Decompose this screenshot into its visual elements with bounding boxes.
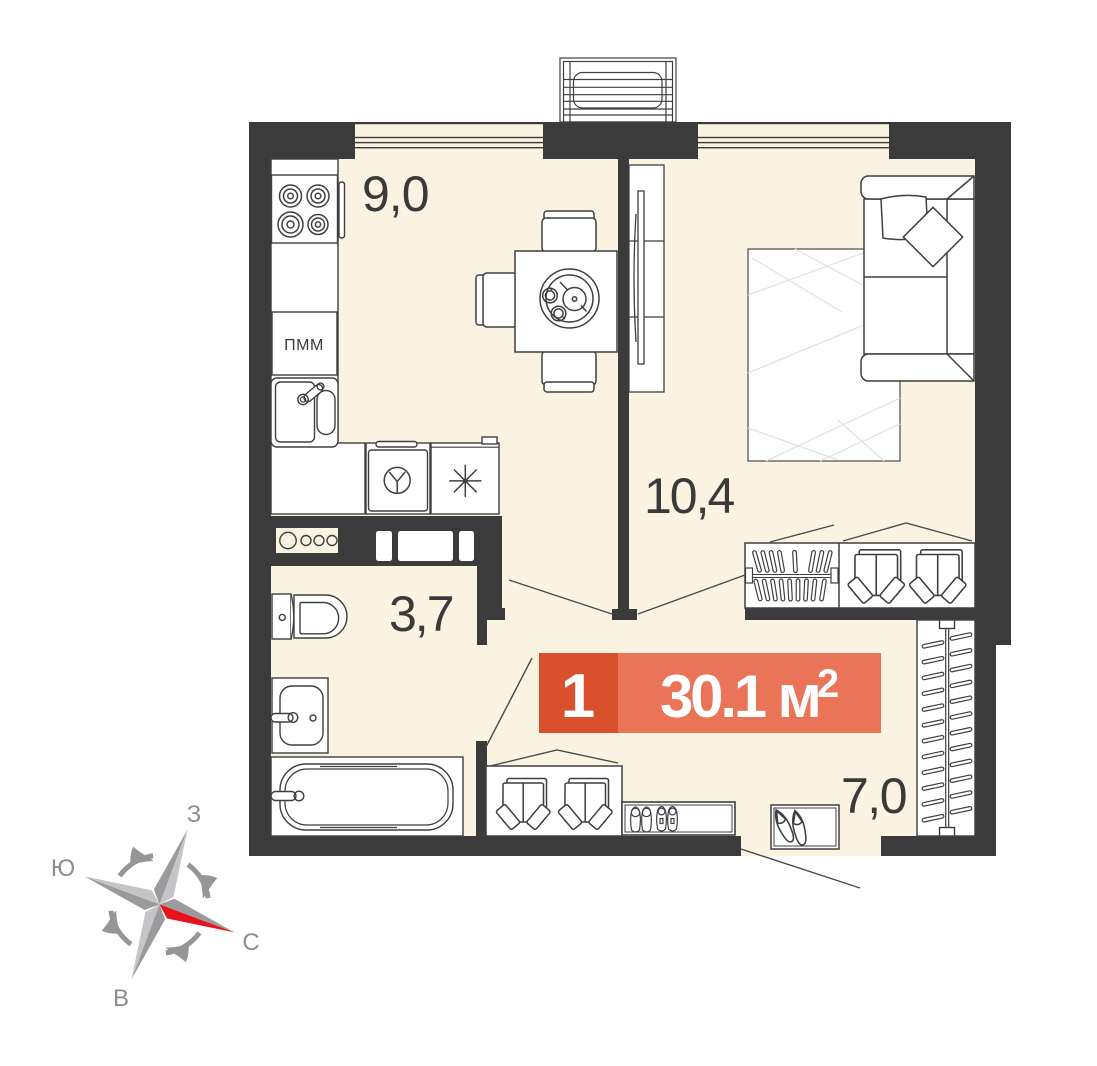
svg-text:ПММ: ПММ [284, 337, 324, 354]
svg-text:3,7: 3,7 [389, 586, 453, 642]
svg-text:10,4: 10,4 [644, 468, 735, 524]
svg-text:Ю: Ю [51, 855, 75, 882]
svg-text:2: 2 [817, 662, 839, 706]
svg-text:В: В [113, 985, 129, 1012]
svg-text:30.1 м: 30.1 м [660, 663, 819, 730]
svg-text:9,0: 9,0 [362, 166, 429, 222]
svg-text:С: С [242, 929, 259, 956]
svg-text:З: З [187, 801, 202, 828]
svg-text:7,0: 7,0 [841, 768, 906, 824]
svg-text:1: 1 [561, 662, 595, 731]
